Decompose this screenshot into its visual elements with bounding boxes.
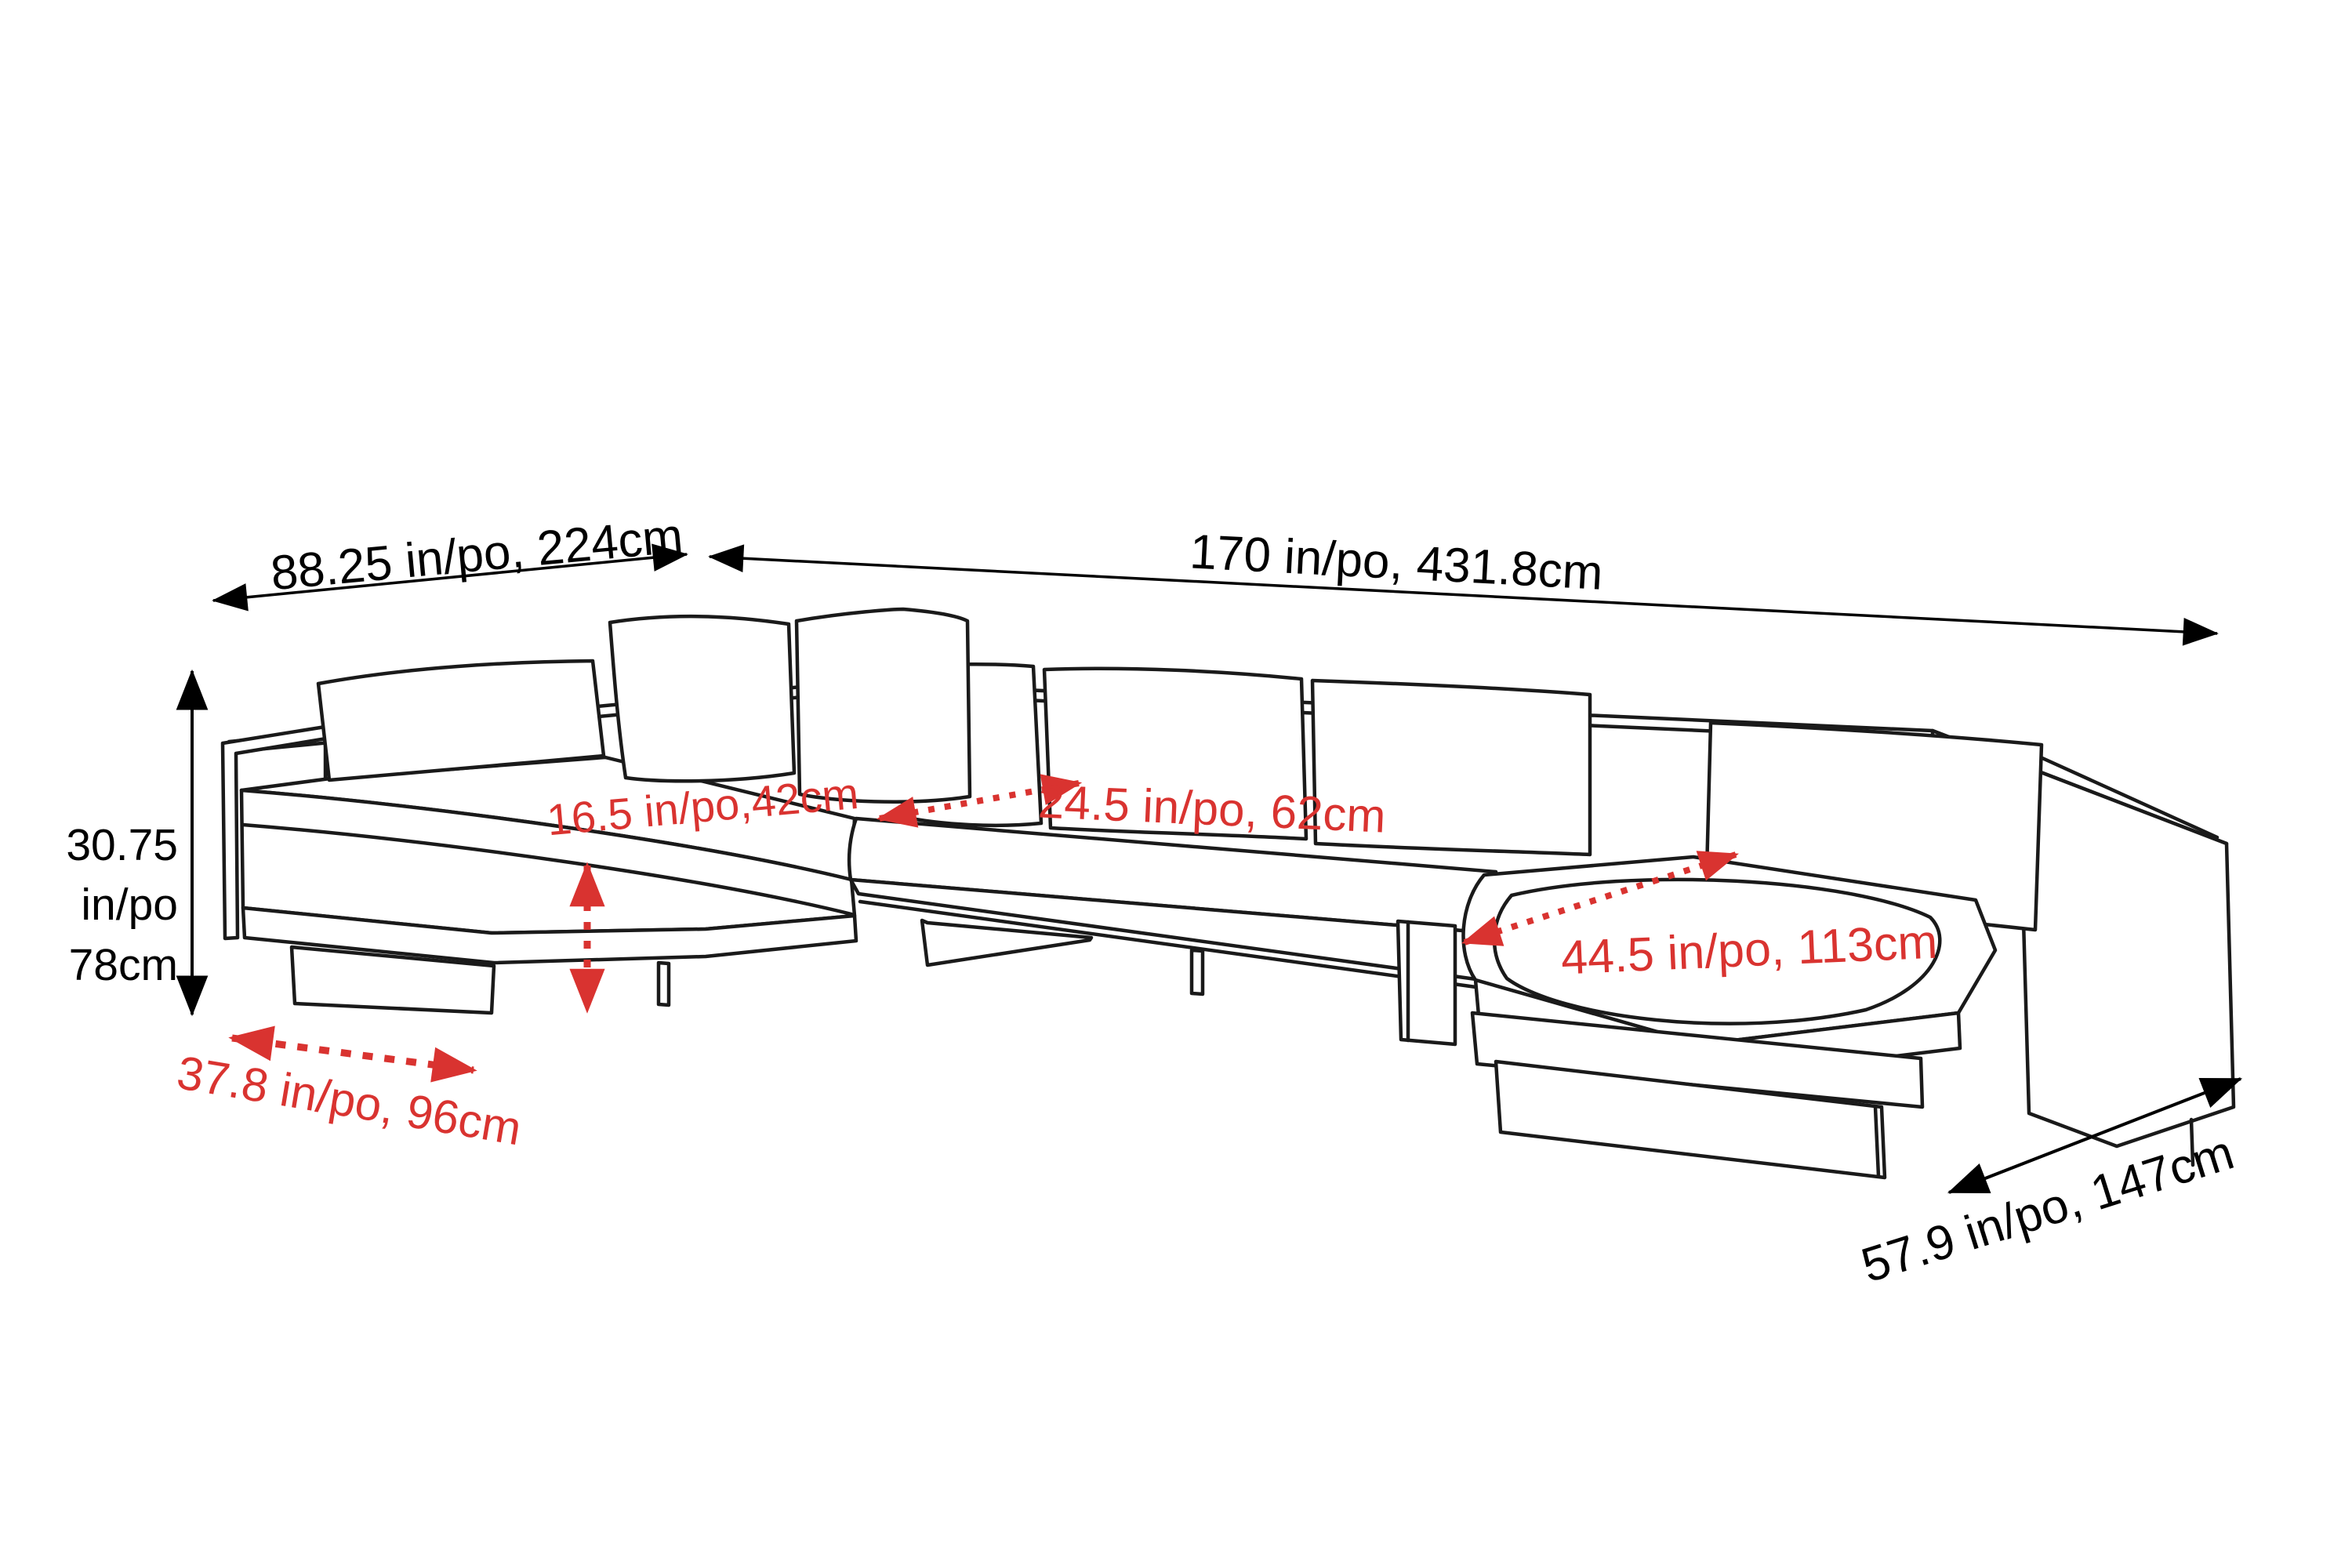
bench-leg-1 [1192,950,1203,994]
sofa-line-drawing [223,609,2234,1178]
dimension-label: 37.8 in/po, 96cm [173,1046,525,1155]
dimension-label: 88.25 in/po, 224cm [268,509,684,601]
dimension-left-section-width: 88.25 in/po, 224cm [213,509,687,601]
bench-sled-bracket [922,920,1091,965]
sofa-dimension-diagram: 88.25 in/po, 224cm 170 in/po, 431.8cm 30… [0,0,2352,1568]
dimension-label-line3: 78cm [69,940,178,990]
dimension-label: 170 in/po, 431.8cm [1189,524,1604,601]
dimension-overall-height: 30.75 in/po 78cm [66,671,192,1014]
corner-pillow-back [610,616,794,781]
dimension-label-line1: 30.75 [66,820,178,870]
dimension-left-section-depth: 37.8 in/po, 96cm [173,1038,525,1155]
dimension-label: 57.9 in/po, 147cm [1855,1125,2240,1293]
left-leg [659,963,669,1005]
dimension-label-line2: in/po [81,880,178,930]
